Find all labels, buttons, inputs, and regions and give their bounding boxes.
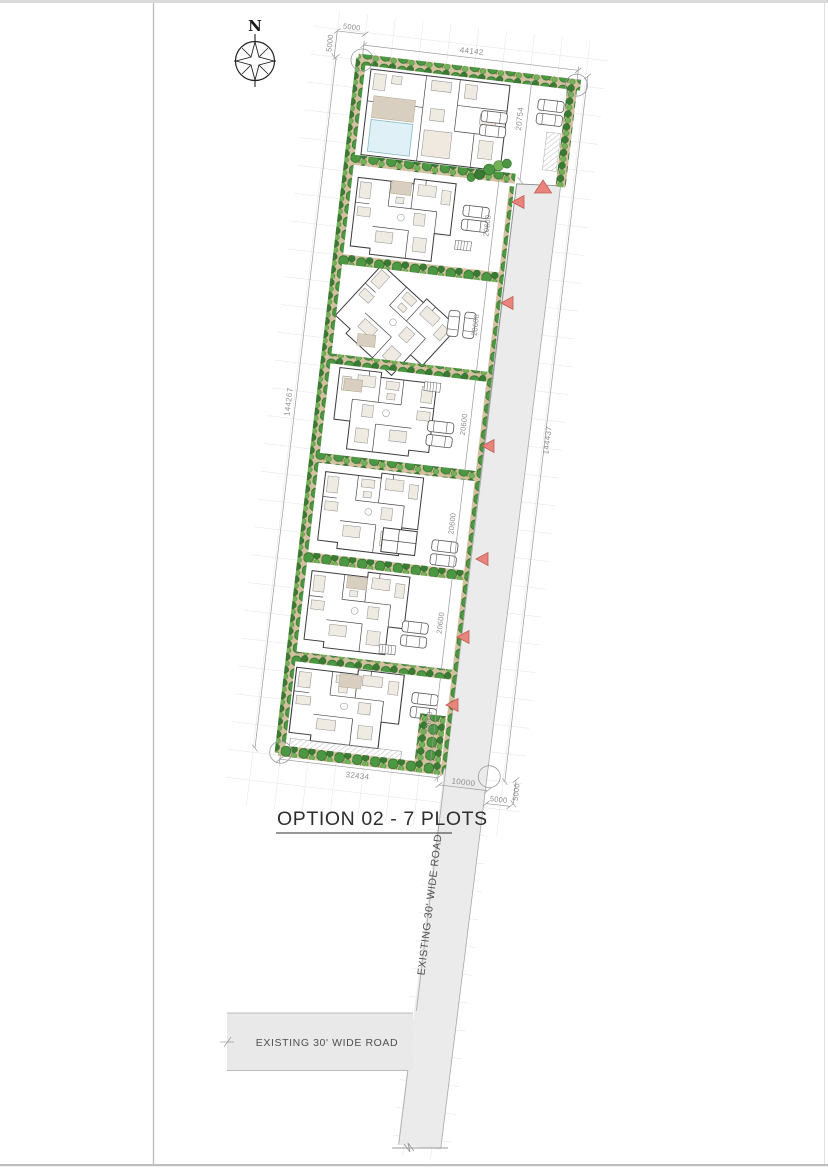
site-group: 5000 5000 44142 20754 144437 144267 2060… [184,8,610,1166]
site-plan-page: N [0,0,828,1172]
drawing-title: OPTION 02 - 7 PLOTS [276,808,488,833]
north-compass: N [234,17,276,87]
site-plan-canvas: N [0,0,828,1172]
page-title: OPTION 02 - 7 PLOTS [277,808,488,830]
plot1-pool [367,119,412,156]
north-label: N [248,17,262,35]
plot1-deck [371,96,415,123]
horizontal-road-label: EXISTING 30' WIDE ROAD [256,1037,398,1049]
compass-star-icon [236,42,274,80]
